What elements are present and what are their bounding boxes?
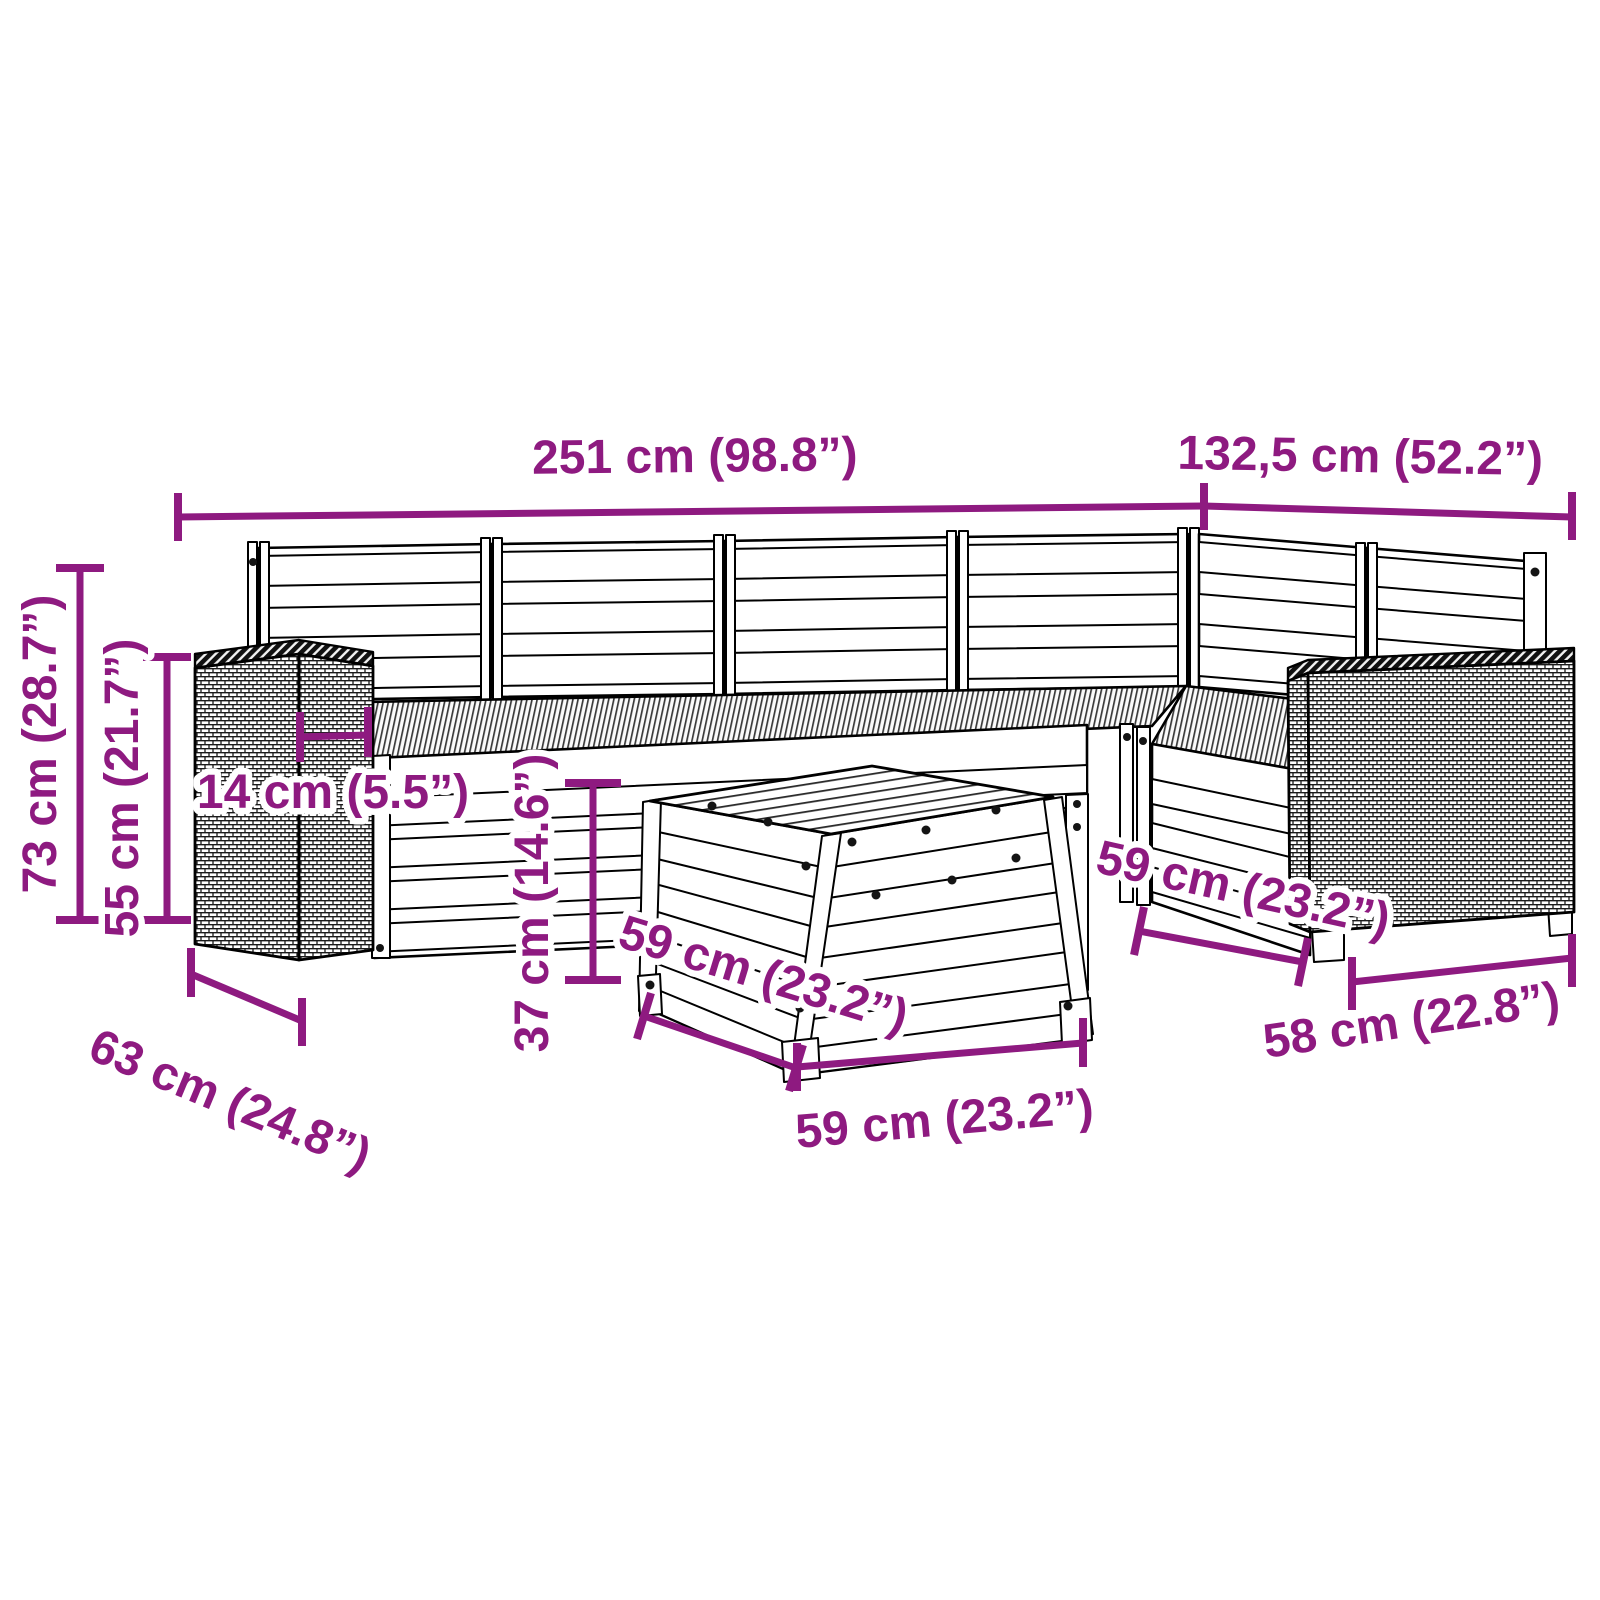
dim-armrest-height-label: 55 cm (21.7”) (96, 639, 149, 938)
dim-total-width-label: 251 cm (98.8”) (532, 428, 858, 484)
dim-total-width-line (178, 483, 1204, 541)
dim-table-height-label: 37 cm (14.6”) (506, 754, 559, 1053)
furniture-dimension-diagram: 251 cm (98.8”) 132,5 cm (52.2”) 73 cm (2… (0, 0, 1600, 1600)
product-dimension-image: 251 cm (98.8”) 132,5 cm (52.2”) 73 cm (2… (0, 0, 1600, 1600)
dim-total-depth-label: 132,5 cm (52.2”) (1177, 427, 1543, 486)
dim-armrest-depth-label: 63 cm (24.8”) (82, 1019, 378, 1182)
dim-table-front-width-label: 59 cm (23.2”) (793, 1080, 1095, 1159)
dim-total-depth-line (1204, 492, 1572, 540)
dim-back-height-label: 73 cm (28.7”) (14, 595, 67, 894)
dim-armrest-height-line (143, 657, 191, 920)
dim-seat-width-right-label: 58 cm (22.8”) (1260, 972, 1563, 1069)
dim-armrest-top-width-label: 14 cm (5.5”) (197, 766, 469, 819)
dim-armrest-depth-line (191, 948, 302, 1046)
